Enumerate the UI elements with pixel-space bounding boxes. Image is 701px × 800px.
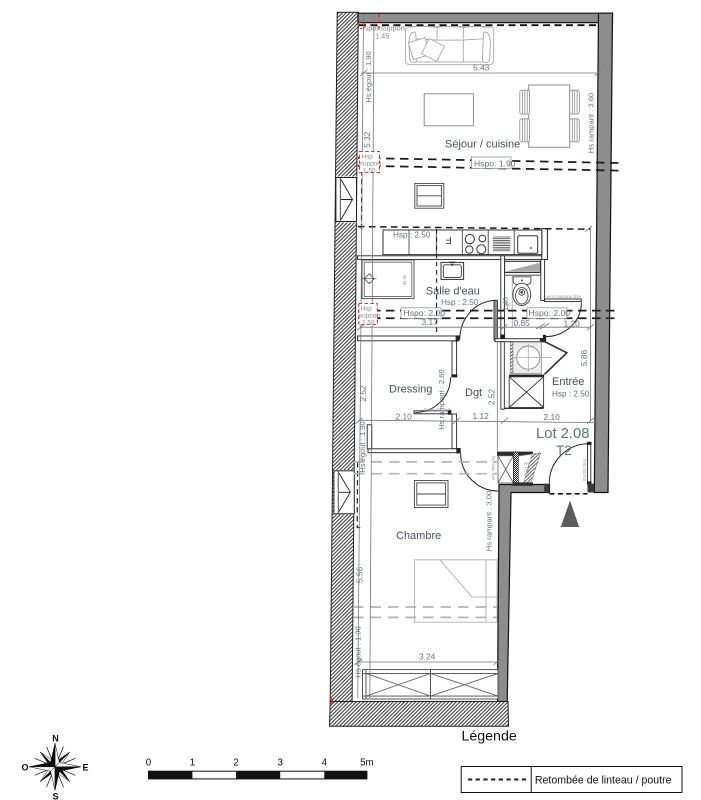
svg-text:Faux-plafond: Faux-plafond [424, 407, 450, 412]
svg-text:Dgt: Dgt [465, 387, 482, 399]
svg-text:Hsp: Hsp [362, 154, 374, 161]
svg-text:Hspo: 2.00: Hspo: 2.00 [529, 308, 571, 318]
svg-text:Hspo: 1.90: Hspo: 1.90 [474, 158, 516, 168]
svg-text:2.10: 2.10 [544, 412, 561, 422]
svg-text:2.52: 2.52 [358, 385, 368, 402]
svg-text:Salle d'eau: Salle d'eau [426, 286, 480, 298]
svg-text:T2: T2 [556, 443, 572, 458]
svg-text:Hs rampant : 3.00: Hs rampant : 3.00 [485, 491, 494, 551]
svg-text:Légende: Légende [462, 728, 517, 744]
svg-text:5.86: 5.86 [579, 350, 589, 367]
svg-text:ETEL: ETEL [523, 462, 529, 475]
svg-text:5.56: 5.56 [355, 567, 365, 584]
svg-text:1: 1 [190, 757, 195, 768]
svg-text:Hsp : 2.50: Hsp : 2.50 [441, 298, 479, 307]
svg-text:1.50: 1.50 [363, 167, 376, 174]
svg-text:N: N [52, 733, 59, 743]
svg-text:5.32: 5.32 [362, 131, 372, 148]
svg-text:O: O [21, 762, 28, 772]
svg-text:1.20: 1.20 [564, 319, 581, 329]
svg-text:1.12: 1.12 [473, 411, 490, 421]
svg-text:5m: 5m [360, 757, 374, 768]
svg-text:S: S [52, 791, 58, 800]
svg-text:1.45: 1.45 [375, 32, 389, 41]
svg-text:90 90: 90 90 [402, 274, 407, 285]
svg-text:Hs égout : 1.90: Hs égout : 1.90 [358, 421, 367, 473]
svg-text:F: F [446, 234, 452, 245]
svg-text:wcm passage libre: wcm passage libre [547, 294, 582, 299]
svg-text:3.24: 3.24 [419, 651, 436, 661]
svg-text:Entrée: Entrée [552, 376, 584, 388]
svg-text:5.43: 5.43 [473, 63, 490, 73]
svg-text:Chambre: Chambre [396, 530, 441, 542]
svg-text:Dressing: Dressing [389, 384, 432, 396]
svg-text:E: E [82, 762, 88, 772]
svg-text:4: 4 [322, 757, 328, 768]
svg-text:Hs rampant : 3.60: Hs rampant : 3.60 [587, 93, 596, 153]
svg-text:3.17: 3.17 [422, 317, 439, 327]
svg-text:Séjour / cuisine: Séjour / cuisine [445, 139, 520, 151]
svg-text:Hsp : 2.50: Hsp : 2.50 [393, 230, 431, 239]
svg-text:3: 3 [277, 757, 283, 768]
svg-text:1.40: 1.40 [501, 297, 510, 311]
svg-text:Hs égout : 1.90: Hs égout : 1.90 [364, 51, 373, 103]
svg-text:Retombée de linteau / poutre: Retombée de linteau / poutre [535, 774, 672, 786]
svg-text:Hsp : 2.50: Hsp : 2.50 [552, 390, 590, 399]
svg-text:0: 0 [146, 757, 152, 768]
svg-text:2: 2 [233, 757, 238, 768]
svg-text:93x204 brut: 93x204 brut [582, 458, 587, 481]
svg-text:Hs égout : 1.90: Hs égout : 1.90 [353, 626, 362, 678]
svg-text:vers dressing: vers dressing [491, 455, 496, 481]
svg-text:2.10: 2.10 [396, 412, 413, 422]
svg-text:Hs rampant : 2.60: Hs rampant : 2.60 [437, 369, 446, 429]
svg-text:1.50: 1.50 [362, 319, 375, 326]
svg-text:Hsp: Hsp [361, 306, 373, 313]
svg-text:2.52: 2.52 [487, 389, 497, 406]
svg-text:Lot 2.08: Lot 2.08 [536, 426, 589, 442]
svg-text:0.85: 0.85 [514, 318, 531, 328]
